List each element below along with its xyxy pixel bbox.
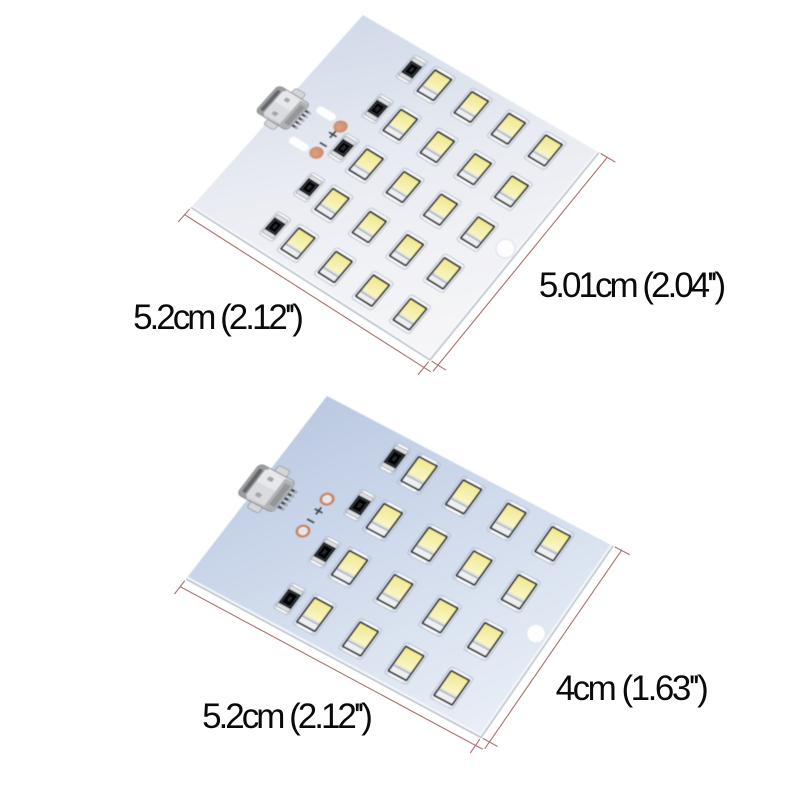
svg-text:4cm (1.63''): 4cm (1.63'') — [556, 669, 707, 708]
svg-text:5.2cm (2.12''): 5.2cm (2.12'') — [133, 298, 302, 337]
svg-text:5.01cm (2.04''): 5.01cm (2.04'') — [539, 266, 725, 305]
svg-text:5.2cm (2.12''): 5.2cm (2.12'') — [202, 697, 371, 736]
